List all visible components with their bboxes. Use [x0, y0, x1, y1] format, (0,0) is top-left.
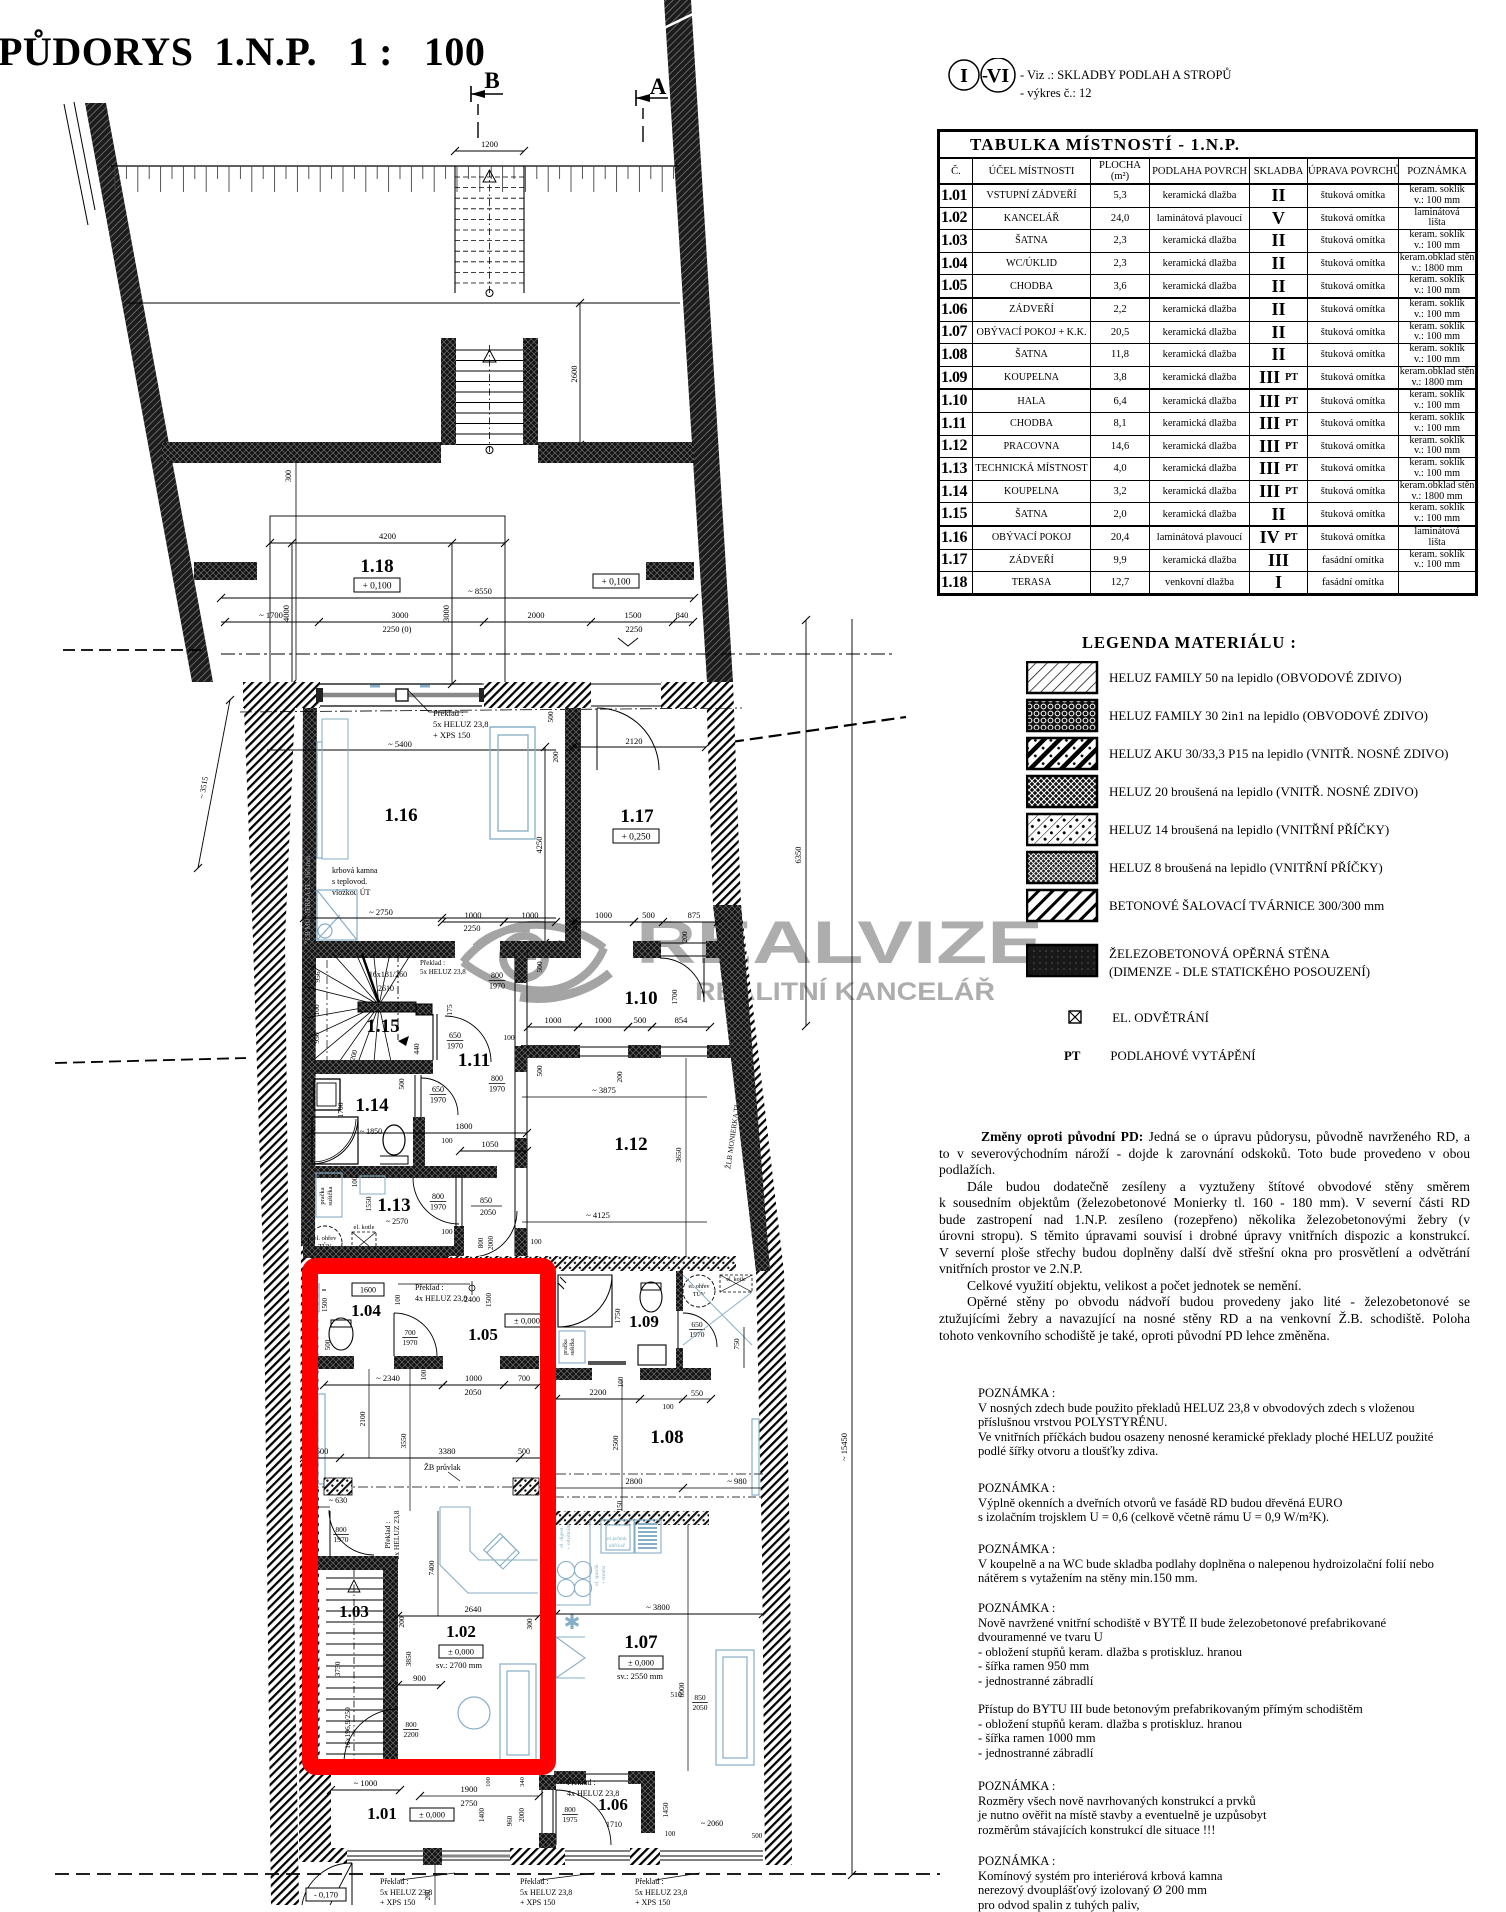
- svg-text:175: 175: [445, 1004, 454, 1016]
- svg-text:~ 980: ~ 980: [727, 1476, 746, 1486]
- svg-text:100: 100: [665, 1830, 676, 1838]
- svg-text:+ trouba: + trouba: [601, 1565, 607, 1584]
- svg-text:200: 200: [680, 931, 689, 943]
- svg-text:3000: 3000: [441, 605, 451, 622]
- svg-text:- výkres č.: 12: - výkres č.: 12: [1020, 86, 1092, 100]
- svg-text:550: 550: [691, 1389, 703, 1398]
- svg-text:7400: 7400: [427, 1560, 436, 1575]
- svg-text:2500: 2500: [611, 1435, 620, 1450]
- svg-text:2250 (0): 2250 (0): [382, 624, 411, 634]
- svg-text:el. kotle: el. kotle: [726, 1277, 746, 1283]
- svg-text:800: 800: [477, 1237, 485, 1248]
- svg-text:± 0,000: ± 0,000: [628, 1658, 654, 1668]
- svg-text:HELUZ AKU 30/33,3 P15 na lepi: HELUZ AKU 30/33,3 P15 na lepidlo (VNITŘ.…: [1109, 746, 1448, 761]
- svg-text:± 0,000: ± 0,000: [419, 1810, 445, 1820]
- svg-text:875: 875: [688, 910, 701, 920]
- svg-text:950: 950: [312, 1032, 321, 1044]
- svg-text:100: 100: [617, 1376, 625, 1387]
- svg-text:1.01: 1.01: [367, 1804, 397, 1823]
- svg-text:2100: 2100: [358, 1411, 367, 1426]
- svg-text:750: 750: [732, 1338, 741, 1350]
- svg-text:510: 510: [670, 1690, 682, 1699]
- svg-text:1.16: 1.16: [384, 805, 417, 826]
- svg-text:100: 100: [503, 1033, 515, 1042]
- svg-text:1970: 1970: [489, 1085, 505, 1094]
- svg-text:650: 650: [449, 1031, 461, 1040]
- svg-text:+ 0,250: + 0,250: [621, 833, 650, 843]
- svg-text:ŽLB MONIERKA TL. 160 mm: ŽLB MONIERKA TL. 160 mm: [304, 855, 312, 945]
- svg-text:Překlad :: Překlad :: [635, 1877, 664, 1886]
- svg-text:2400: 2400: [464, 1295, 480, 1304]
- svg-text:1.02: 1.02: [446, 1622, 476, 1641]
- svg-text:1200: 1200: [481, 139, 498, 149]
- svg-text:500: 500: [518, 1447, 530, 1456]
- svg-text:HELUZ 14 broušená na lepidlo: HELUZ 14 broušená na lepidlo (VNITŘNÍ PŘ…: [1109, 822, 1389, 837]
- svg-text:1000: 1000: [465, 910, 482, 920]
- svg-text:(DIMENZE - DLE STATICKÉHO PO: (DIMENZE - DLE STATICKÉHO POSOUZENÍ): [1109, 964, 1370, 979]
- svg-text:1.17: 1.17: [620, 806, 654, 827]
- svg-text:1.04: 1.04: [351, 1301, 381, 1320]
- svg-text:el. digest.: el. digest.: [559, 1526, 565, 1548]
- svg-text:~ 1850: ~ 1850: [360, 1127, 382, 1136]
- svg-text:800: 800: [491, 1074, 503, 1083]
- svg-text:krbová kamna: krbová kamna: [332, 866, 378, 875]
- svg-text:pračka: pračka: [563, 1339, 569, 1355]
- svg-text:ŽB průvlak: ŽB průvlak: [424, 1462, 461, 1472]
- svg-text:Překlad :: Překlad :: [380, 1877, 409, 1886]
- svg-text:2000: 2000: [528, 610, 545, 620]
- svg-text:- 0,170: - 0,170: [314, 1890, 338, 1900]
- svg-text:~ 2750: ~ 2750: [369, 907, 393, 917]
- svg-text:+ odvětrání: + odvětrání: [566, 1524, 572, 1550]
- svg-text:+ 0,100: + 0,100: [362, 582, 391, 592]
- svg-text:2800: 2800: [626, 1476, 643, 1486]
- svg-text:100: 100: [312, 1004, 321, 1016]
- svg-text:5x HELUZ 23,8: 5x HELUZ 23,8: [433, 719, 488, 729]
- svg-text:~ 630: ~ 630: [329, 1496, 347, 1505]
- svg-text:650: 650: [691, 1320, 703, 1329]
- svg-text:3380: 3380: [439, 1446, 456, 1456]
- svg-text:2x HELUZ 23,8: 2x HELUZ 23,8: [392, 1510, 401, 1559]
- svg-text:6350: 6350: [793, 847, 803, 864]
- svg-text:700: 700: [404, 1328, 416, 1337]
- svg-text:100: 100: [485, 1777, 492, 1787]
- svg-text:A: A: [650, 74, 667, 99]
- svg-text:+ XPS 150: + XPS 150: [433, 730, 470, 740]
- svg-text:el. kotle: el. kotle: [354, 1224, 375, 1231]
- svg-text:Překlad :: Překlad :: [383, 1522, 392, 1549]
- svg-text:800: 800: [491, 971, 503, 980]
- svg-text:3550: 3550: [399, 1433, 408, 1448]
- svg-text:3650: 3650: [674, 1147, 683, 1162]
- svg-text:s teplovod.: s teplovod.: [332, 877, 367, 886]
- svg-text:~ 4125: ~ 4125: [586, 1210, 610, 1220]
- svg-text:~ 3875: ~ 3875: [592, 1085, 616, 1095]
- svg-text:500: 500: [397, 1078, 406, 1090]
- svg-text:Překlad :: Překlad :: [567, 1778, 596, 1787]
- svg-text:200: 200: [570, 919, 579, 931]
- svg-text:Překlad :: Překlad :: [420, 959, 445, 967]
- svg-text:1.05: 1.05: [468, 1325, 498, 1344]
- svg-text:500: 500: [642, 910, 655, 920]
- svg-text:~ 5400: ~ 5400: [388, 739, 412, 749]
- svg-text:500: 500: [634, 1015, 647, 1025]
- svg-text:900: 900: [413, 1673, 426, 1683]
- svg-text:2750: 2750: [461, 1798, 478, 1808]
- svg-text:+ 0,100: + 0,100: [601, 578, 630, 588]
- svg-text:1000: 1000: [595, 1015, 612, 1025]
- svg-text:5x HELUZ 23,8: 5x HELUZ 23,8: [420, 968, 466, 976]
- svg-text:1000: 1000: [465, 1373, 482, 1383]
- svg-text:1970: 1970: [489, 982, 505, 991]
- svg-text:BETONOVÉ ŠALOVACÍ TVÁRNICE 30: BETONOVÉ ŠALOVACÍ TVÁRNICE 300/300 mm: [1109, 898, 1384, 913]
- svg-text:1550: 1550: [364, 1196, 373, 1211]
- svg-text:~ 2060: ~ 2060: [701, 1819, 723, 1828]
- svg-text:Překlad :: Překlad :: [433, 708, 463, 718]
- svg-text:1700: 1700: [670, 989, 679, 1004]
- svg-text:1.08: 1.08: [650, 1427, 683, 1448]
- svg-text:100: 100: [662, 1402, 674, 1411]
- svg-text:el. ohřev: el. ohřev: [689, 1284, 710, 1290]
- svg-text:2610: 2610: [378, 984, 394, 993]
- svg-text:1970: 1970: [403, 1338, 418, 1347]
- svg-text:2250: 2250: [626, 624, 643, 634]
- svg-text:100: 100: [394, 1294, 402, 1305]
- svg-text:340: 340: [519, 1777, 526, 1787]
- svg-text:HELUZ 20 broušená na lepidlo: HELUZ 20 broušená na lepidlo (VNITŘ. NOS…: [1109, 784, 1418, 799]
- svg-text:3850: 3850: [404, 1651, 413, 1666]
- svg-text:1500: 1500: [625, 610, 642, 620]
- svg-text:1800: 1800: [456, 1121, 473, 1131]
- svg-text:1710: 1710: [606, 1820, 622, 1829]
- svg-text:500: 500: [535, 1065, 544, 1077]
- svg-text:1500: 1500: [321, 1298, 329, 1313]
- svg-text:1.11: 1.11: [458, 1050, 490, 1071]
- svg-text:~ 1700: ~ 1700: [259, 610, 283, 620]
- svg-text:5x HELUZ 23,8: 5x HELUZ 23,8: [635, 1888, 687, 1897]
- svg-text:1000: 1000: [595, 910, 612, 920]
- svg-text:1970: 1970: [430, 1203, 446, 1212]
- svg-text:1700: 1700: [336, 1102, 345, 1117]
- svg-text:1450: 1450: [661, 1802, 670, 1817]
- svg-text:pračka: pračka: [319, 1187, 326, 1204]
- svg-text:✱: ✱: [564, 1612, 581, 1634]
- svg-text:500: 500: [546, 711, 555, 723]
- svg-text:2200: 2200: [590, 1387, 607, 1397]
- svg-text:5x HELUZ 23,8: 5x HELUZ 23,8: [520, 1888, 572, 1897]
- svg-text:4200: 4200: [379, 531, 396, 541]
- svg-text:1000: 1000: [545, 1015, 562, 1025]
- svg-text:1400: 1400: [478, 1808, 486, 1823]
- svg-text:1000: 1000: [522, 910, 539, 920]
- svg-text:2200: 2200: [404, 1730, 419, 1739]
- svg-text:800: 800: [405, 1720, 417, 1729]
- svg-text:+ XPS 150: + XPS 150: [520, 1898, 555, 1905]
- svg-text:4x HELUZ 23,8: 4x HELUZ 23,8: [415, 1294, 467, 1303]
- svg-text:ŽELEZOBETONOVÁ OPĚRNÁ STĚNA: ŽELEZOBETONOVÁ OPĚRNÁ STĚNA: [1109, 946, 1330, 961]
- svg-text:el. ohřev: el. ohřev: [314, 1235, 337, 1242]
- svg-text:1900: 1900: [461, 1784, 478, 1794]
- svg-text:+ XPS 150: + XPS 150: [380, 1898, 415, 1905]
- svg-text:2050: 2050: [465, 1387, 482, 1397]
- svg-text:2120: 2120: [626, 736, 643, 746]
- svg-text:3000: 3000: [392, 610, 409, 620]
- svg-text:1.12: 1.12: [614, 1134, 647, 1155]
- svg-text:960: 960: [506, 1815, 514, 1826]
- svg-text:~ 2570: ~ 2570: [386, 1217, 408, 1226]
- svg-text:2000: 2000: [487, 1236, 495, 1251]
- svg-text:- Viz .: SKLADBY PODLAH A STRO: - Viz .: SKLADBY PODLAH A STROPŮ: [1020, 67, 1231, 82]
- svg-text:~ 15450: ~ 15450: [839, 1433, 849, 1461]
- svg-text:700: 700: [518, 1374, 530, 1383]
- svg-text:vložkou ÚT: vložkou ÚT: [332, 887, 371, 897]
- svg-text:2050: 2050: [480, 1208, 496, 1217]
- svg-text:Překlad :: Překlad :: [520, 1877, 549, 1886]
- svg-text:1600: 1600: [360, 1286, 376, 1295]
- svg-text:~ 8550: ~ 8550: [468, 586, 492, 596]
- svg-text:1500: 1500: [485, 1293, 493, 1308]
- svg-text:sušička: sušička: [570, 1338, 576, 1355]
- svg-text:100: 100: [351, 1176, 359, 1187]
- svg-text:500: 500: [324, 1339, 332, 1350]
- svg-text:I: I: [960, 65, 968, 87]
- svg-text:el. sporák: el. sporák: [594, 1564, 600, 1586]
- svg-text:1970: 1970: [334, 1535, 349, 1544]
- svg-text:HELUZ 8 broušená na lepidlo: HELUZ 8 broušená na lepidlo (VNITŘNÍ PŘÍ…: [1109, 860, 1383, 875]
- svg-text:100: 100: [420, 1369, 428, 1380]
- svg-text:150: 150: [616, 1500, 624, 1511]
- svg-text:500: 500: [535, 961, 544, 973]
- svg-text:850: 850: [480, 1196, 492, 1205]
- svg-text:200: 200: [348, 1049, 360, 1062]
- svg-text:el.průtok: el.průtok: [607, 1535, 627, 1542]
- svg-text:1050: 1050: [482, 1139, 499, 1149]
- svg-text:200: 200: [551, 751, 560, 763]
- svg-text:sušička: sušička: [327, 1186, 334, 1205]
- svg-text:~ 1000: ~ 1000: [354, 1778, 378, 1788]
- svg-text:~ 2340: ~ 2340: [376, 1373, 400, 1383]
- svg-text:sv.: 2700 mm: sv.: 2700 mm: [436, 1660, 482, 1670]
- svg-text:ohřívač: ohřívač: [609, 1543, 626, 1549]
- svg-text:200: 200: [615, 1071, 624, 1083]
- svg-text:2600: 2600: [569, 366, 579, 383]
- svg-text:2640: 2640: [465, 1604, 482, 1614]
- svg-text:1.14: 1.14: [355, 1095, 389, 1116]
- svg-text:800: 800: [432, 1192, 444, 1201]
- svg-text:100: 100: [441, 1136, 453, 1145]
- svg-text:1.10: 1.10: [624, 988, 657, 1009]
- svg-text:440: 440: [412, 1043, 421, 1055]
- svg-text:1.13: 1.13: [377, 1195, 410, 1216]
- svg-text:956: 956: [313, 971, 322, 983]
- svg-text:1.18: 1.18: [360, 556, 393, 577]
- svg-text:2050: 2050: [693, 1703, 708, 1712]
- svg-text:300: 300: [525, 1618, 534, 1630]
- svg-text:HELUZ FAMILY 30 2in1 na lepi: HELUZ FAMILY 30 2in1 na lepidlo (OBVODOV…: [1109, 708, 1428, 723]
- svg-text:3750: 3750: [333, 1661, 342, 1676]
- svg-text:~ 3800: ~ 3800: [646, 1602, 670, 1612]
- svg-text:800: 800: [564, 1805, 576, 1814]
- svg-text:100: 100: [530, 1237, 542, 1246]
- svg-text:300: 300: [284, 470, 293, 482]
- svg-text:5x HELUZ 23,8: 5x HELUZ 23,8: [380, 1888, 432, 1897]
- svg-text:1975: 1975: [563, 1815, 578, 1824]
- svg-text:± 0,000: ± 0,000: [448, 1647, 474, 1657]
- svg-text:~ 3515: ~ 3515: [197, 776, 210, 800]
- svg-text:2000: 2000: [518, 1808, 526, 1823]
- svg-text:2250: 2250: [464, 923, 481, 933]
- svg-text:850: 850: [694, 1693, 706, 1702]
- svg-text:B: B: [484, 68, 499, 93]
- svg-text:sv.: 2550 mm: sv.: 2550 mm: [617, 1671, 663, 1681]
- svg-text:VI: VI: [987, 65, 1009, 87]
- svg-text:840: 840: [676, 610, 689, 620]
- svg-text:800: 800: [335, 1525, 347, 1534]
- svg-text:854: 854: [675, 1015, 689, 1025]
- svg-text:+ XPS 150: + XPS 150: [635, 1898, 670, 1905]
- svg-text:650: 650: [432, 1085, 444, 1094]
- svg-text:1970: 1970: [430, 1096, 446, 1105]
- svg-text:100: 100: [441, 1227, 453, 1236]
- svg-text:1.09: 1.09: [629, 1312, 659, 1331]
- svg-text:± 0,000: ± 0,000: [514, 1316, 540, 1326]
- svg-text:16x181/260: 16x181/260: [369, 970, 407, 979]
- svg-text:HELUZ FAMILY 50 na lepidlo (: HELUZ FAMILY 50 na lepidlo (OBVODOVÉ ZDI…: [1109, 670, 1402, 685]
- svg-text:1750: 1750: [613, 1308, 622, 1323]
- svg-text:200: 200: [397, 1616, 406, 1628]
- svg-text:500: 500: [752, 1832, 763, 1840]
- svg-text:1.07: 1.07: [624, 1632, 658, 1653]
